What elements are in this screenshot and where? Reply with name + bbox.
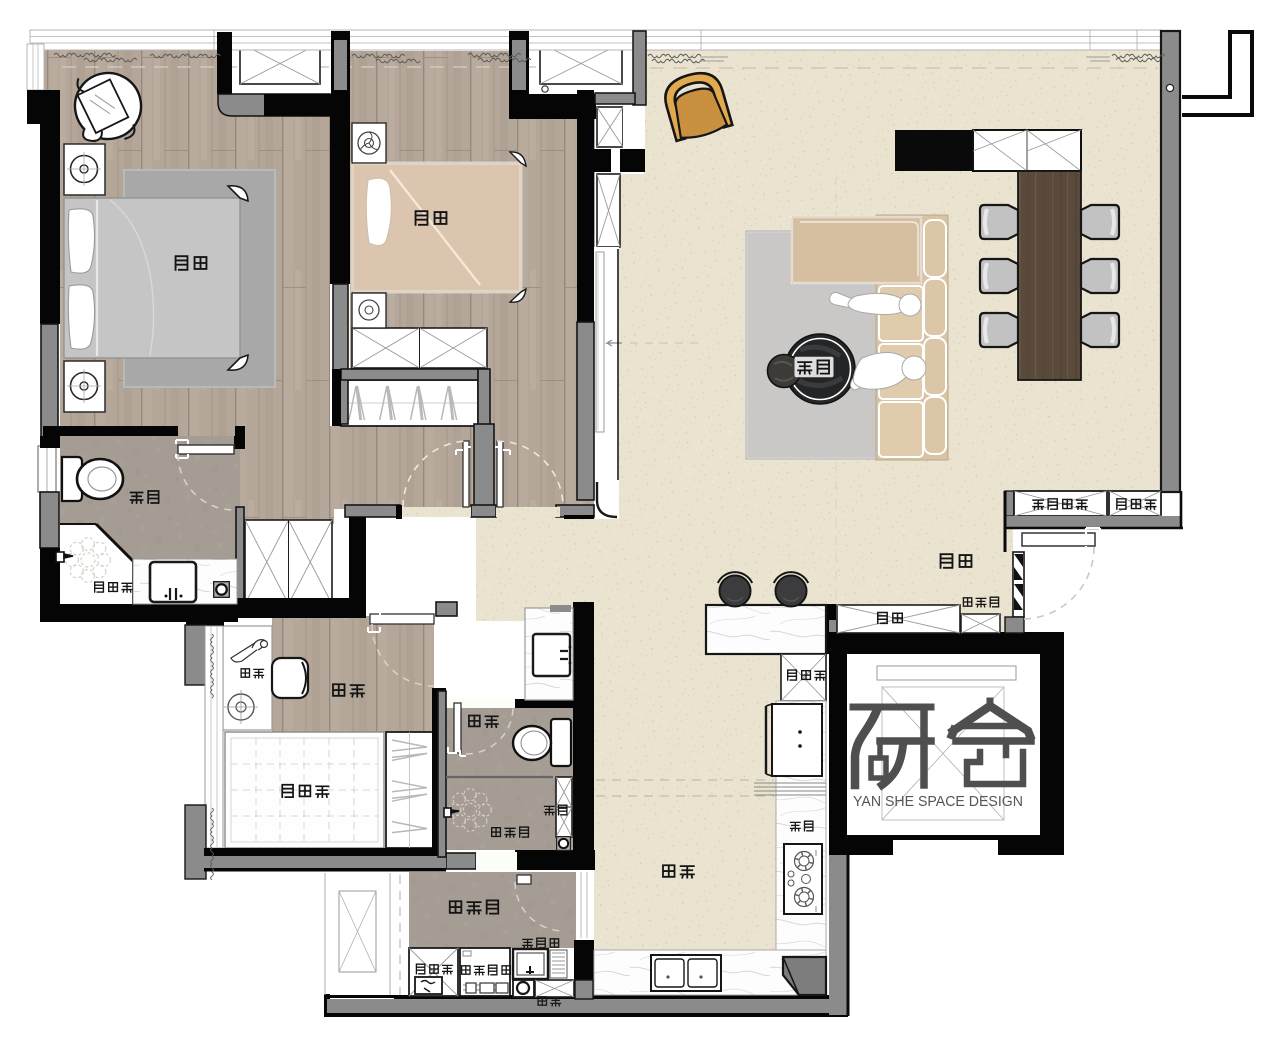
svg-text:YAN SHE SPACE DESIGN: YAN SHE SPACE DESIGN (853, 793, 1023, 810)
